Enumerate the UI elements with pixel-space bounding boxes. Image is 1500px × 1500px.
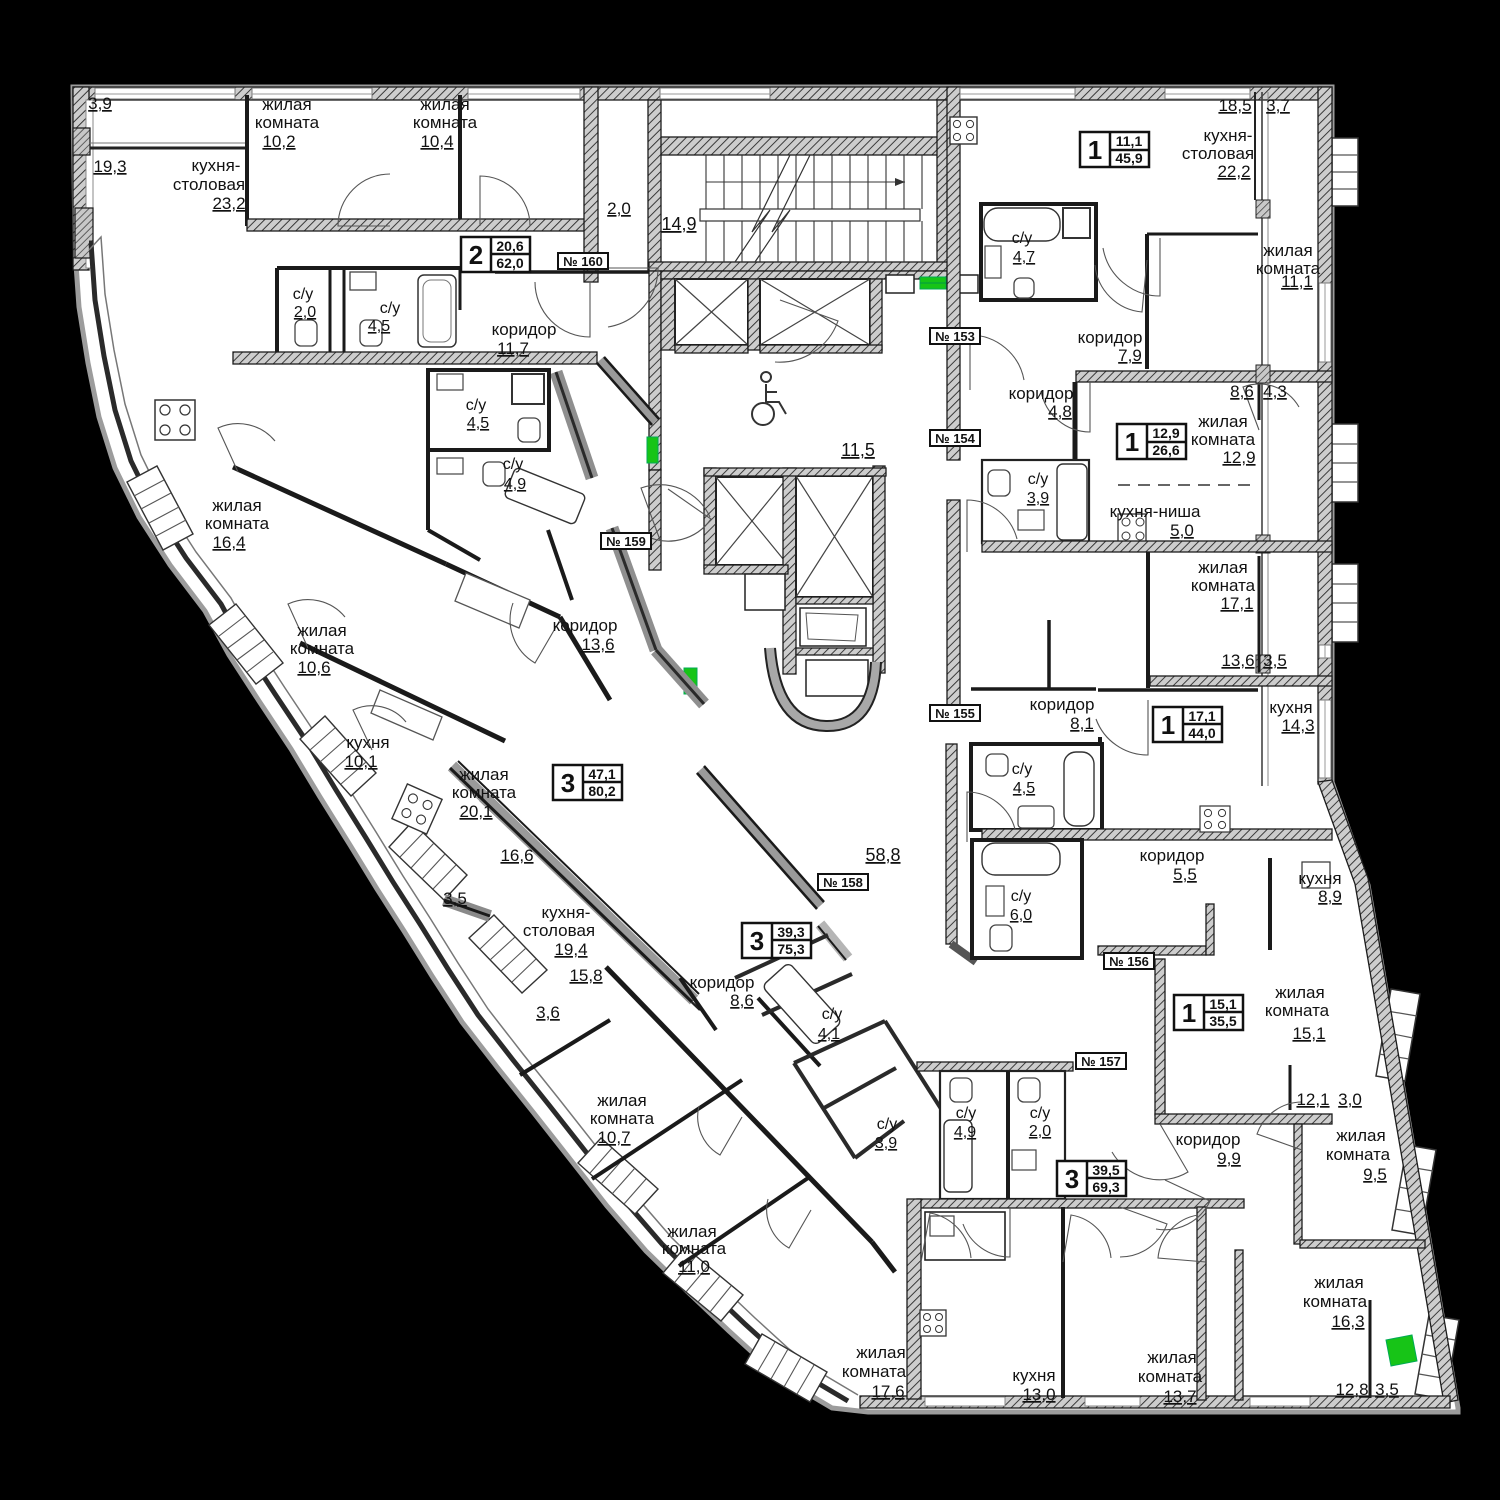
svg-text:19,4: 19,4 <box>554 940 587 959</box>
svg-text:3,0: 3,0 <box>1338 1090 1362 1109</box>
svg-text:44,0: 44,0 <box>1188 725 1215 741</box>
svg-text:кухня: кухня <box>346 733 389 752</box>
svg-text:26,6: 26,6 <box>1152 442 1179 458</box>
svg-text:комната: комната <box>1326 1145 1391 1164</box>
svg-text:58,8: 58,8 <box>865 845 900 865</box>
svg-text:3,9: 3,9 <box>1027 490 1049 507</box>
svg-text:4,7: 4,7 <box>1013 249 1035 266</box>
svg-text:кухня-: кухня- <box>192 156 241 175</box>
svg-text:3,9: 3,9 <box>88 94 112 113</box>
svg-text:22,2: 22,2 <box>1217 162 1250 181</box>
svg-text:2,0: 2,0 <box>1029 1123 1051 1140</box>
svg-text:17,1: 17,1 <box>1220 594 1253 613</box>
svg-text:с/у: с/у <box>503 456 523 473</box>
svg-text:12,1: 12,1 <box>1296 1090 1329 1109</box>
svg-text:с/у: с/у <box>877 1116 897 1133</box>
svg-text:с/у: с/у <box>1012 230 1032 247</box>
svg-text:жилая: жилая <box>459 765 508 784</box>
svg-text:коридор: коридор <box>1078 328 1143 347</box>
svg-text:№ 156: № 156 <box>1109 954 1149 969</box>
svg-text:23,2: 23,2 <box>212 194 245 213</box>
svg-text:5,5: 5,5 <box>1173 865 1197 884</box>
svg-text:коридор: коридор <box>690 973 755 992</box>
svg-text:4,8: 4,8 <box>1048 402 1072 421</box>
svg-text:4,5: 4,5 <box>467 415 489 432</box>
svg-text:8,6: 8,6 <box>730 991 754 1010</box>
svg-text:45,9: 45,9 <box>1115 150 1142 166</box>
svg-text:39,5: 39,5 <box>1092 1162 1119 1178</box>
svg-text:10,6: 10,6 <box>297 658 330 677</box>
svg-text:3,9: 3,9 <box>875 1135 897 1152</box>
svg-text:14,3: 14,3 <box>1281 716 1314 735</box>
svg-text:№ 153: № 153 <box>935 329 975 344</box>
svg-text:кухня: кухня <box>1012 1366 1055 1385</box>
svg-text:кухня: кухня <box>1298 869 1341 888</box>
svg-text:комната: комната <box>413 113 478 132</box>
svg-text:3: 3 <box>561 768 575 798</box>
svg-text:4,9: 4,9 <box>504 476 526 493</box>
svg-text:1: 1 <box>1182 998 1196 1028</box>
svg-text:5,0: 5,0 <box>1170 521 1194 540</box>
svg-text:8,6: 8,6 <box>1230 382 1254 401</box>
svg-text:11,0: 11,0 <box>678 1257 710 1276</box>
svg-text:39,3: 39,3 <box>777 924 804 940</box>
svg-text:с/у: с/у <box>1011 888 1031 905</box>
svg-text:с/у: с/у <box>1028 471 1048 488</box>
svg-text:жилая: жилая <box>1198 558 1247 577</box>
svg-text:жилая: жилая <box>1275 983 1324 1002</box>
svg-text:коридор: коридор <box>1140 846 1205 865</box>
svg-text:47,1: 47,1 <box>588 766 615 782</box>
svg-text:15,1: 15,1 <box>1292 1024 1325 1043</box>
svg-text:4,5: 4,5 <box>368 318 390 335</box>
svg-text:3,6: 3,6 <box>536 1003 560 1022</box>
svg-text:кухня-: кухня- <box>1204 126 1253 145</box>
svg-text:18,5: 18,5 <box>1218 96 1251 115</box>
svg-text:15,1: 15,1 <box>1209 996 1236 1012</box>
svg-text:10,7: 10,7 <box>597 1128 630 1147</box>
svg-text:жилая: жилая <box>262 95 311 114</box>
svg-text:№ 158: № 158 <box>823 875 863 890</box>
svg-text:1: 1 <box>1125 427 1139 457</box>
svg-text:2,0: 2,0 <box>294 304 316 321</box>
svg-text:4,3: 4,3 <box>1263 382 1287 401</box>
svg-text:кухня: кухня <box>1269 698 1312 717</box>
svg-text:комната: комната <box>205 514 270 533</box>
svg-text:с/у: с/у <box>956 1105 976 1122</box>
svg-text:столовая: столовая <box>1182 144 1254 163</box>
svg-text:жилая: жилая <box>420 95 469 114</box>
svg-text:1: 1 <box>1161 710 1175 740</box>
svg-text:6,0: 6,0 <box>1010 907 1032 924</box>
svg-text:3,7: 3,7 <box>1266 96 1290 115</box>
svg-text:11,5: 11,5 <box>841 440 875 460</box>
svg-text:4,5: 4,5 <box>1013 780 1035 797</box>
svg-text:15,8: 15,8 <box>569 966 602 985</box>
svg-text:коридор: коридор <box>1176 1130 1241 1149</box>
svg-text:3,5: 3,5 <box>1263 651 1287 670</box>
svg-text:комната: комната <box>255 113 320 132</box>
svg-text:жилая: жилая <box>856 1343 905 1362</box>
svg-text:20,1: 20,1 <box>459 802 492 821</box>
svg-text:кухня-ниша: кухня-ниша <box>1110 502 1201 521</box>
svg-text:комната: комната <box>842 1362 907 1381</box>
svg-text:3: 3 <box>1065 1164 1079 1194</box>
svg-text:8,9: 8,9 <box>1318 887 1342 906</box>
svg-text:№ 157: № 157 <box>1081 1054 1121 1069</box>
svg-text:17,6: 17,6 <box>871 1382 904 1401</box>
svg-text:кухня-: кухня- <box>542 903 591 922</box>
svg-text:№ 154: № 154 <box>935 431 976 446</box>
svg-text:4,9: 4,9 <box>954 1124 976 1141</box>
svg-text:жилая: жилая <box>297 621 346 640</box>
svg-text:10,2: 10,2 <box>262 132 295 151</box>
svg-text:10,4: 10,4 <box>420 132 453 151</box>
svg-text:16,3: 16,3 <box>1331 1312 1364 1331</box>
svg-text:19,3: 19,3 <box>93 157 126 176</box>
svg-text:комната: комната <box>590 1109 655 1128</box>
svg-text:3,5: 3,5 <box>1375 1380 1399 1399</box>
svg-text:жилая: жилая <box>597 1091 646 1110</box>
svg-text:11,1: 11,1 <box>1116 133 1143 149</box>
svg-text:жилая: жилая <box>1314 1273 1363 1292</box>
svg-text:16,6: 16,6 <box>500 846 533 865</box>
svg-text:12,9: 12,9 <box>1222 448 1255 467</box>
svg-text:9,5: 9,5 <box>1363 1165 1387 1184</box>
svg-text:с/у: с/у <box>380 300 400 317</box>
svg-text:75,3: 75,3 <box>777 941 804 957</box>
svg-text:коридор: коридор <box>553 616 618 635</box>
svg-text:13,0: 13,0 <box>1022 1385 1055 1404</box>
svg-text:12,9: 12,9 <box>1152 425 1179 441</box>
svg-text:4,1: 4,1 <box>818 1026 840 1043</box>
svg-text:62,0: 62,0 <box>496 255 523 271</box>
svg-text:комната: комната <box>1191 430 1256 449</box>
svg-text:10,1: 10,1 <box>344 752 377 771</box>
svg-text:комната: комната <box>1191 576 1256 595</box>
svg-text:20,6: 20,6 <box>496 238 523 254</box>
svg-text:с/у: с/у <box>1012 761 1032 778</box>
svg-text:жилая: жилая <box>1147 1348 1196 1367</box>
svg-text:14,9: 14,9 <box>661 214 696 234</box>
svg-text:13,6: 13,6 <box>1221 651 1254 670</box>
svg-text:жилая: жилая <box>212 496 261 515</box>
svg-text:№ 160: № 160 <box>563 254 603 269</box>
svg-text:2,0: 2,0 <box>607 199 631 218</box>
svg-text:жилая: жилая <box>1198 412 1247 431</box>
svg-text:11,7: 11,7 <box>497 339 529 358</box>
svg-text:13,6: 13,6 <box>581 635 614 654</box>
svg-text:3,5: 3,5 <box>443 889 467 908</box>
svg-text:№ 159: № 159 <box>606 534 646 549</box>
svg-text:16,4: 16,4 <box>212 533 245 552</box>
svg-text:комната: комната <box>1303 1292 1368 1311</box>
svg-text:12,8: 12,8 <box>1335 1380 1368 1399</box>
svg-text:коридор: коридор <box>1009 384 1074 403</box>
svg-text:комната: комната <box>290 639 355 658</box>
svg-text:8,1: 8,1 <box>1070 714 1094 733</box>
svg-text:комната: комната <box>662 1239 727 1258</box>
svg-text:7,9: 7,9 <box>1118 346 1142 365</box>
svg-text:69,3: 69,3 <box>1092 1179 1119 1195</box>
svg-text:комната: комната <box>1265 1001 1330 1020</box>
svg-text:13,7: 13,7 <box>1163 1387 1196 1406</box>
svg-text:с/у: с/у <box>466 397 486 414</box>
svg-text:коридор: коридор <box>492 320 557 339</box>
svg-text:коридор: коридор <box>1030 695 1095 714</box>
svg-text:с/у: с/у <box>293 286 313 303</box>
svg-text:17,1: 17,1 <box>1188 708 1215 724</box>
svg-text:2: 2 <box>469 240 483 270</box>
svg-text:комната: комната <box>1138 1367 1203 1386</box>
svg-text:80,2: 80,2 <box>588 783 615 799</box>
svg-text:11,1: 11,1 <box>1281 272 1313 291</box>
svg-text:с/у: с/у <box>822 1006 842 1023</box>
svg-text:№ 155: № 155 <box>935 706 975 721</box>
svg-text:жилая: жилая <box>1263 241 1312 260</box>
svg-text:жилая: жилая <box>1336 1126 1385 1145</box>
svg-text:столовая: столовая <box>523 921 595 940</box>
svg-text:с/у: с/у <box>1030 1105 1050 1122</box>
svg-text:3: 3 <box>750 926 764 956</box>
svg-text:9,9: 9,9 <box>1217 1149 1241 1168</box>
svg-text:комната: комната <box>452 783 517 802</box>
svg-text:столовая: столовая <box>173 175 245 194</box>
svg-text:1: 1 <box>1088 135 1102 165</box>
svg-text:35,5: 35,5 <box>1209 1013 1236 1029</box>
